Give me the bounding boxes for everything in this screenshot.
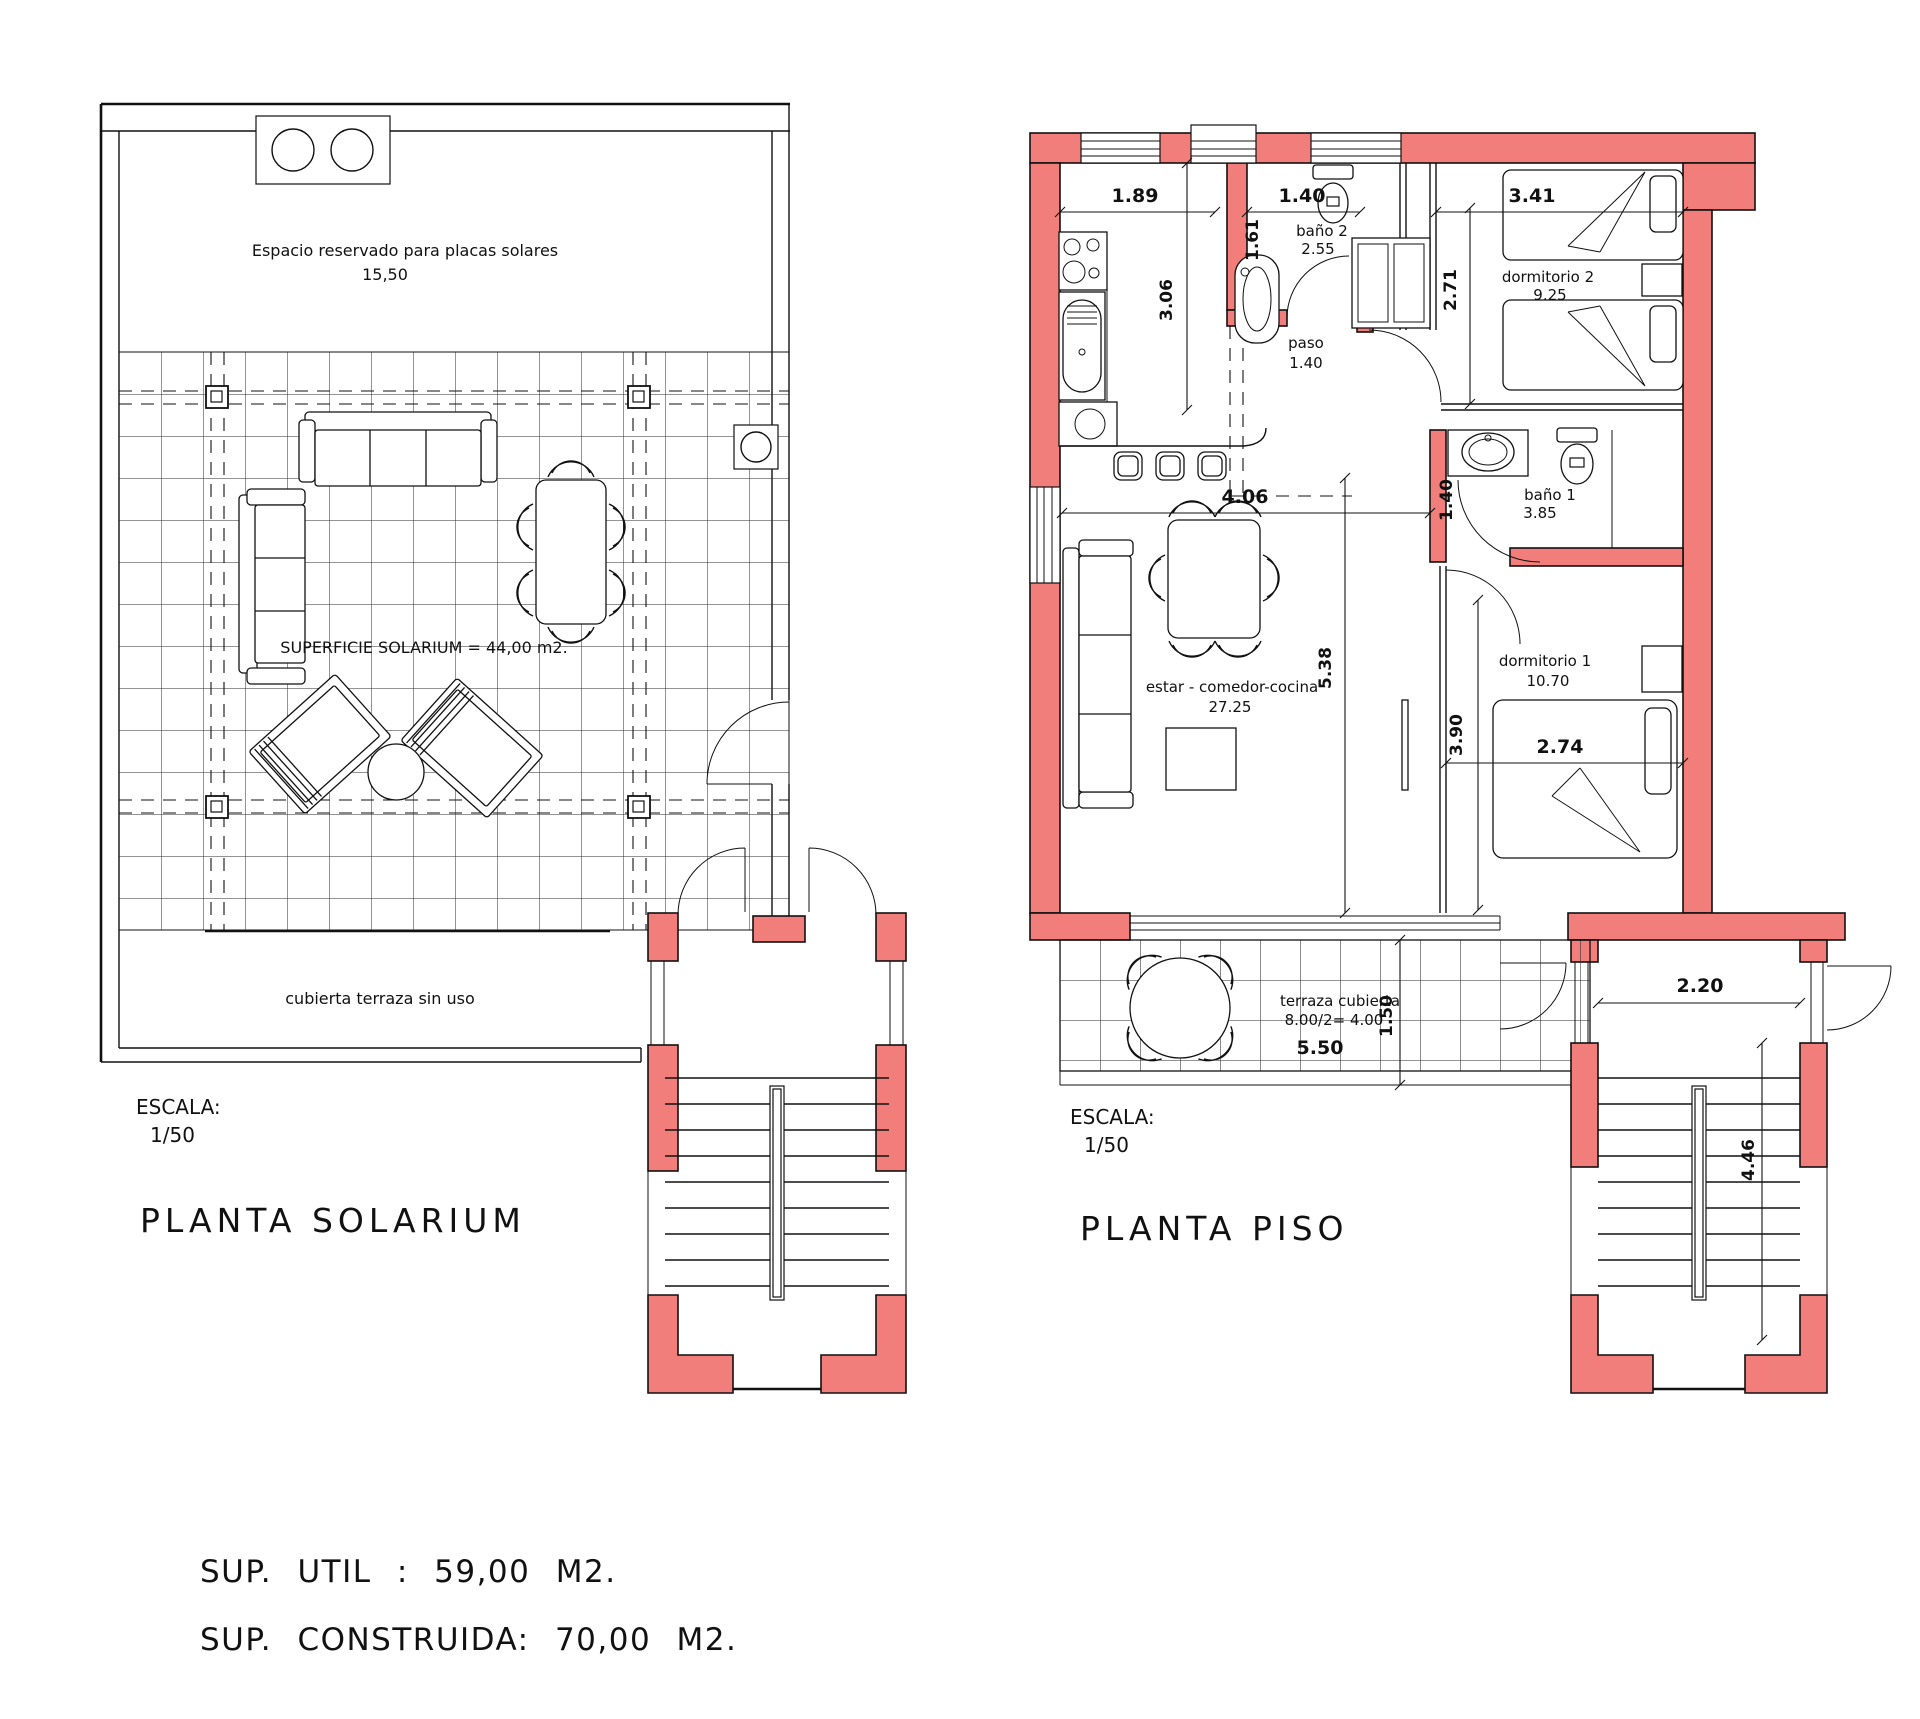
stair-depth-dim: 4.46 bbox=[1739, 1139, 1759, 1181]
bedroom-1 bbox=[1493, 646, 1682, 858]
bedroom2-area-label: 9.25 bbox=[1533, 286, 1566, 304]
bath2-window bbox=[1191, 125, 1256, 163]
living-name-label: estar - comedor-cocina bbox=[1146, 678, 1318, 696]
bar-stool bbox=[1114, 452, 1142, 480]
bedroom1-width-dim: 2.74 bbox=[1537, 736, 1584, 758]
bar-stool bbox=[1156, 452, 1184, 480]
plan-solarium: Espacio reservado para placas solares 15… bbox=[100, 104, 906, 1393]
summary-construida: SUP. CONSTRUIDA: 70,00 M2. bbox=[200, 1622, 737, 1658]
surface-summary: SUP. UTIL : 59,00 M2. SUP. CONSTRUIDA: 7… bbox=[200, 1554, 737, 1658]
covered-terrace: terraza cubierta 8.00/2= 4.00 5.50 bbox=[1060, 940, 1590, 1085]
entrance-door bbox=[1827, 966, 1891, 1030]
bath2-area-label: 2.55 bbox=[1301, 240, 1334, 258]
bath1-entry-dim: 1.40 bbox=[1437, 479, 1457, 521]
floorplan-page: Espacio reservado para placas solares 15… bbox=[0, 0, 1920, 1719]
coffee-table bbox=[1166, 728, 1236, 790]
basin-2 bbox=[1235, 255, 1279, 343]
piso-walls bbox=[1030, 133, 1845, 962]
kitchen-width-dim: 1.89 bbox=[1112, 185, 1159, 207]
nightstand-1 bbox=[1642, 646, 1682, 692]
living-room bbox=[1063, 501, 1408, 808]
hall-area-label: 1.40 bbox=[1289, 354, 1322, 372]
bedroom2-width-dim: 3.41 bbox=[1509, 185, 1556, 207]
bedroom2-name-label: dormitorio 2 bbox=[1502, 268, 1594, 286]
kitchen-sink bbox=[1059, 292, 1105, 400]
bath1-area-label: 3.85 bbox=[1523, 504, 1556, 522]
deck-area-label: SUPERFICIE SOLARIUM = 44,00 m2. bbox=[280, 638, 567, 657]
piso-scale-value: 1/50 bbox=[1084, 1133, 1129, 1157]
living-depth-dim: 5.38 bbox=[1316, 647, 1336, 689]
bedroom2-door-arc bbox=[1369, 330, 1441, 402]
floorplan-drawing: Espacio reservado para placas solares 15… bbox=[0, 0, 1920, 1719]
bath2-width-dim: 1.40 bbox=[1279, 185, 1326, 207]
terrace-note-label: cubierta terraza sin uso bbox=[285, 989, 474, 1008]
piso-scale-label: ESCALA: bbox=[1070, 1105, 1155, 1129]
bed-double bbox=[1493, 700, 1677, 858]
dim-stair-line bbox=[1757, 1038, 1767, 1345]
terrace-calc-label: 8.00/2= 4.00 bbox=[1285, 1011, 1384, 1029]
plan-piso: terraza cubierta 8.00/2= 4.00 5.50 4.46 … bbox=[1030, 125, 1891, 1393]
bath2-name-label: baño 2 bbox=[1296, 222, 1348, 240]
tv-unit bbox=[1402, 700, 1408, 790]
solarium-scale-value: 1/50 bbox=[150, 1123, 195, 1147]
bathroom-1 bbox=[1448, 428, 1597, 484]
bedroom2-window bbox=[1311, 133, 1401, 163]
bath2-depth-dim: 1.61 bbox=[1243, 219, 1263, 261]
dishwasher bbox=[1059, 402, 1117, 446]
living-width-dim: 4.06 bbox=[1222, 486, 1269, 508]
wardrobe bbox=[1352, 238, 1430, 328]
bath2-door-arc bbox=[1287, 256, 1349, 318]
hall-name-label: paso bbox=[1288, 334, 1324, 352]
bedroom1-name-label: dormitorio 1 bbox=[1499, 652, 1591, 670]
bedroom1-depth-dim: 3.90 bbox=[1447, 714, 1467, 756]
landing-width-dim: 2.20 bbox=[1677, 975, 1724, 997]
solarium-title: PLANTA SOLARIUM bbox=[140, 1201, 526, 1240]
basin-1 bbox=[1448, 430, 1528, 476]
solarium-sofa-top bbox=[299, 412, 497, 486]
piso-title: PLANTA PISO bbox=[1080, 1209, 1349, 1248]
living-window bbox=[1030, 487, 1060, 583]
terrace-width-dim: 5.50 bbox=[1297, 1037, 1344, 1059]
kitchen-depth-dim: 3.06 bbox=[1157, 279, 1177, 321]
bedroom1-door-arc bbox=[1446, 570, 1520, 644]
toilet-1 bbox=[1557, 428, 1597, 484]
roof-note-label: Espacio reservado para placas solares bbox=[252, 241, 558, 260]
sofa bbox=[1063, 540, 1133, 808]
kitchen-window bbox=[1081, 133, 1160, 163]
bed-single-2 bbox=[1503, 300, 1683, 390]
bedroom1-area-label: 10.70 bbox=[1527, 672, 1570, 690]
bar-stool bbox=[1198, 452, 1226, 480]
bed-single-1 bbox=[1503, 170, 1683, 260]
living-area-label: 27.25 bbox=[1209, 698, 1252, 716]
solarium-scale-label: ESCALA: bbox=[136, 1095, 221, 1119]
lower-terrace: cubierta terraza sin uso bbox=[101, 930, 641, 1062]
chimney bbox=[256, 116, 390, 184]
stove bbox=[1059, 232, 1107, 290]
bath1-name-label: baño 1 bbox=[1524, 486, 1576, 504]
nightstand-2 bbox=[1642, 264, 1682, 296]
bedroom2-depth-dim: 2.71 bbox=[1441, 269, 1461, 311]
round-side-table bbox=[368, 744, 424, 800]
roof-width-dim: 15,50 bbox=[362, 265, 408, 284]
drain-box bbox=[734, 425, 778, 469]
summary-util: SUP. UTIL : 59,00 M2. bbox=[200, 1554, 617, 1590]
dining-set bbox=[1149, 501, 1279, 657]
terrace-slider-window bbox=[1130, 916, 1500, 930]
stairwell-right: 4.46 bbox=[1571, 962, 1827, 1393]
terrace-depth-dim: 1.50 bbox=[1377, 995, 1397, 1037]
